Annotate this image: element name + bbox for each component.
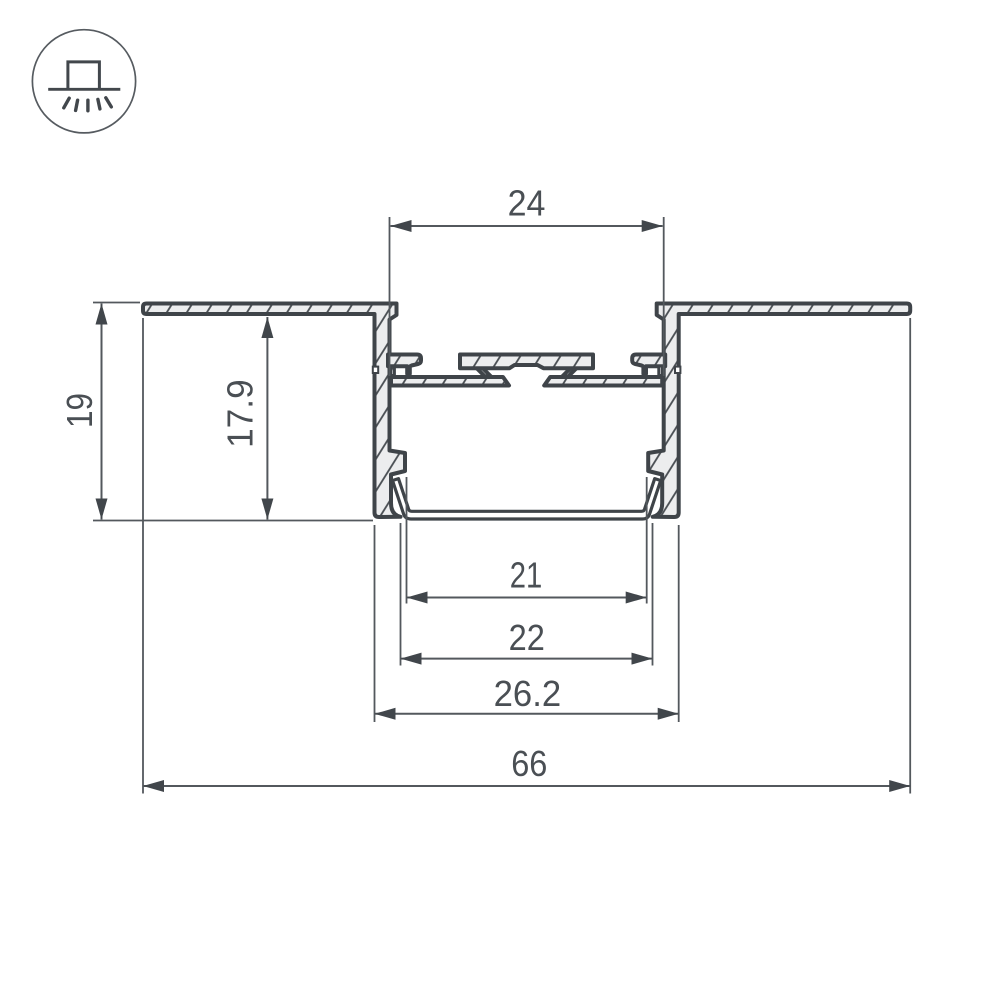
- svg-text:19: 19: [59, 393, 100, 428]
- svg-text:22: 22: [509, 617, 545, 658]
- svg-text:26.2: 26.2: [494, 673, 562, 714]
- svg-text:17.9: 17.9: [220, 379, 261, 448]
- svg-text:21: 21: [510, 554, 543, 595]
- svg-text:24: 24: [508, 183, 546, 224]
- svg-text:66: 66: [511, 743, 547, 784]
